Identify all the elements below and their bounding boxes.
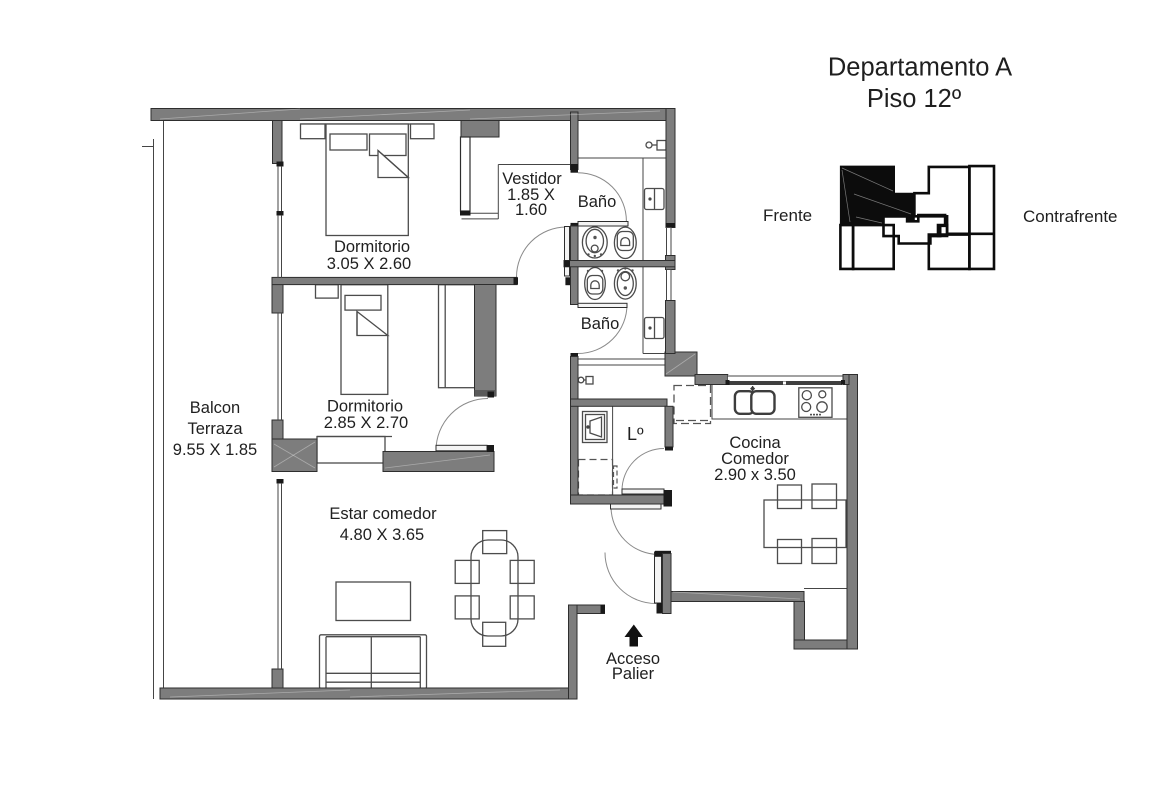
svg-text:Balcon: Balcon <box>190 399 240 417</box>
svg-text:4.80 X 3.65: 4.80 X 3.65 <box>340 526 424 544</box>
svg-text:1.60: 1.60 <box>515 201 547 219</box>
svg-text:Contrafrente: Contrafrente <box>1023 207 1118 226</box>
svg-text:2.90 x 3.50: 2.90 x 3.50 <box>714 466 796 484</box>
svg-text:2.85 X 2.70: 2.85 X 2.70 <box>324 414 408 432</box>
svg-text:Dormitorio: Dormitorio <box>327 398 403 416</box>
svg-text:3.05 X 2.60: 3.05 X 2.60 <box>327 255 411 273</box>
svg-text:Departamento A: Departamento A <box>828 54 1012 82</box>
svg-text:Estar comedor: Estar comedor <box>329 505 437 523</box>
svg-text:Lº: Lº <box>627 424 644 444</box>
svg-text:Baño: Baño <box>578 193 617 211</box>
svg-text:Dormitorio: Dormitorio <box>334 238 410 256</box>
svg-text:Piso 12º: Piso 12º <box>867 85 961 113</box>
svg-text:9.55 X 1.85: 9.55 X 1.85 <box>173 441 257 459</box>
svg-text:Terraza: Terraza <box>187 420 243 438</box>
svg-text:Baño: Baño <box>581 315 620 333</box>
svg-text:Frente: Frente <box>763 206 812 225</box>
svg-text:Palier: Palier <box>612 665 655 683</box>
